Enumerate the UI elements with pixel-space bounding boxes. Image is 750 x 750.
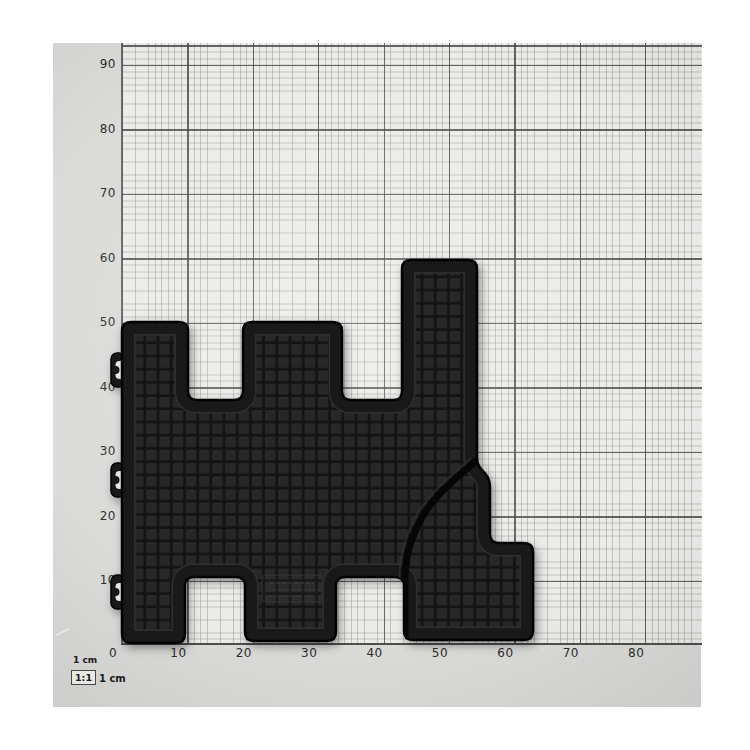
embossed-stamp bbox=[262, 575, 322, 602]
product-photo: 908070605040302010 01020304050607080 1 c… bbox=[0, 0, 750, 750]
floor-mat-image bbox=[0, 0, 750, 750]
